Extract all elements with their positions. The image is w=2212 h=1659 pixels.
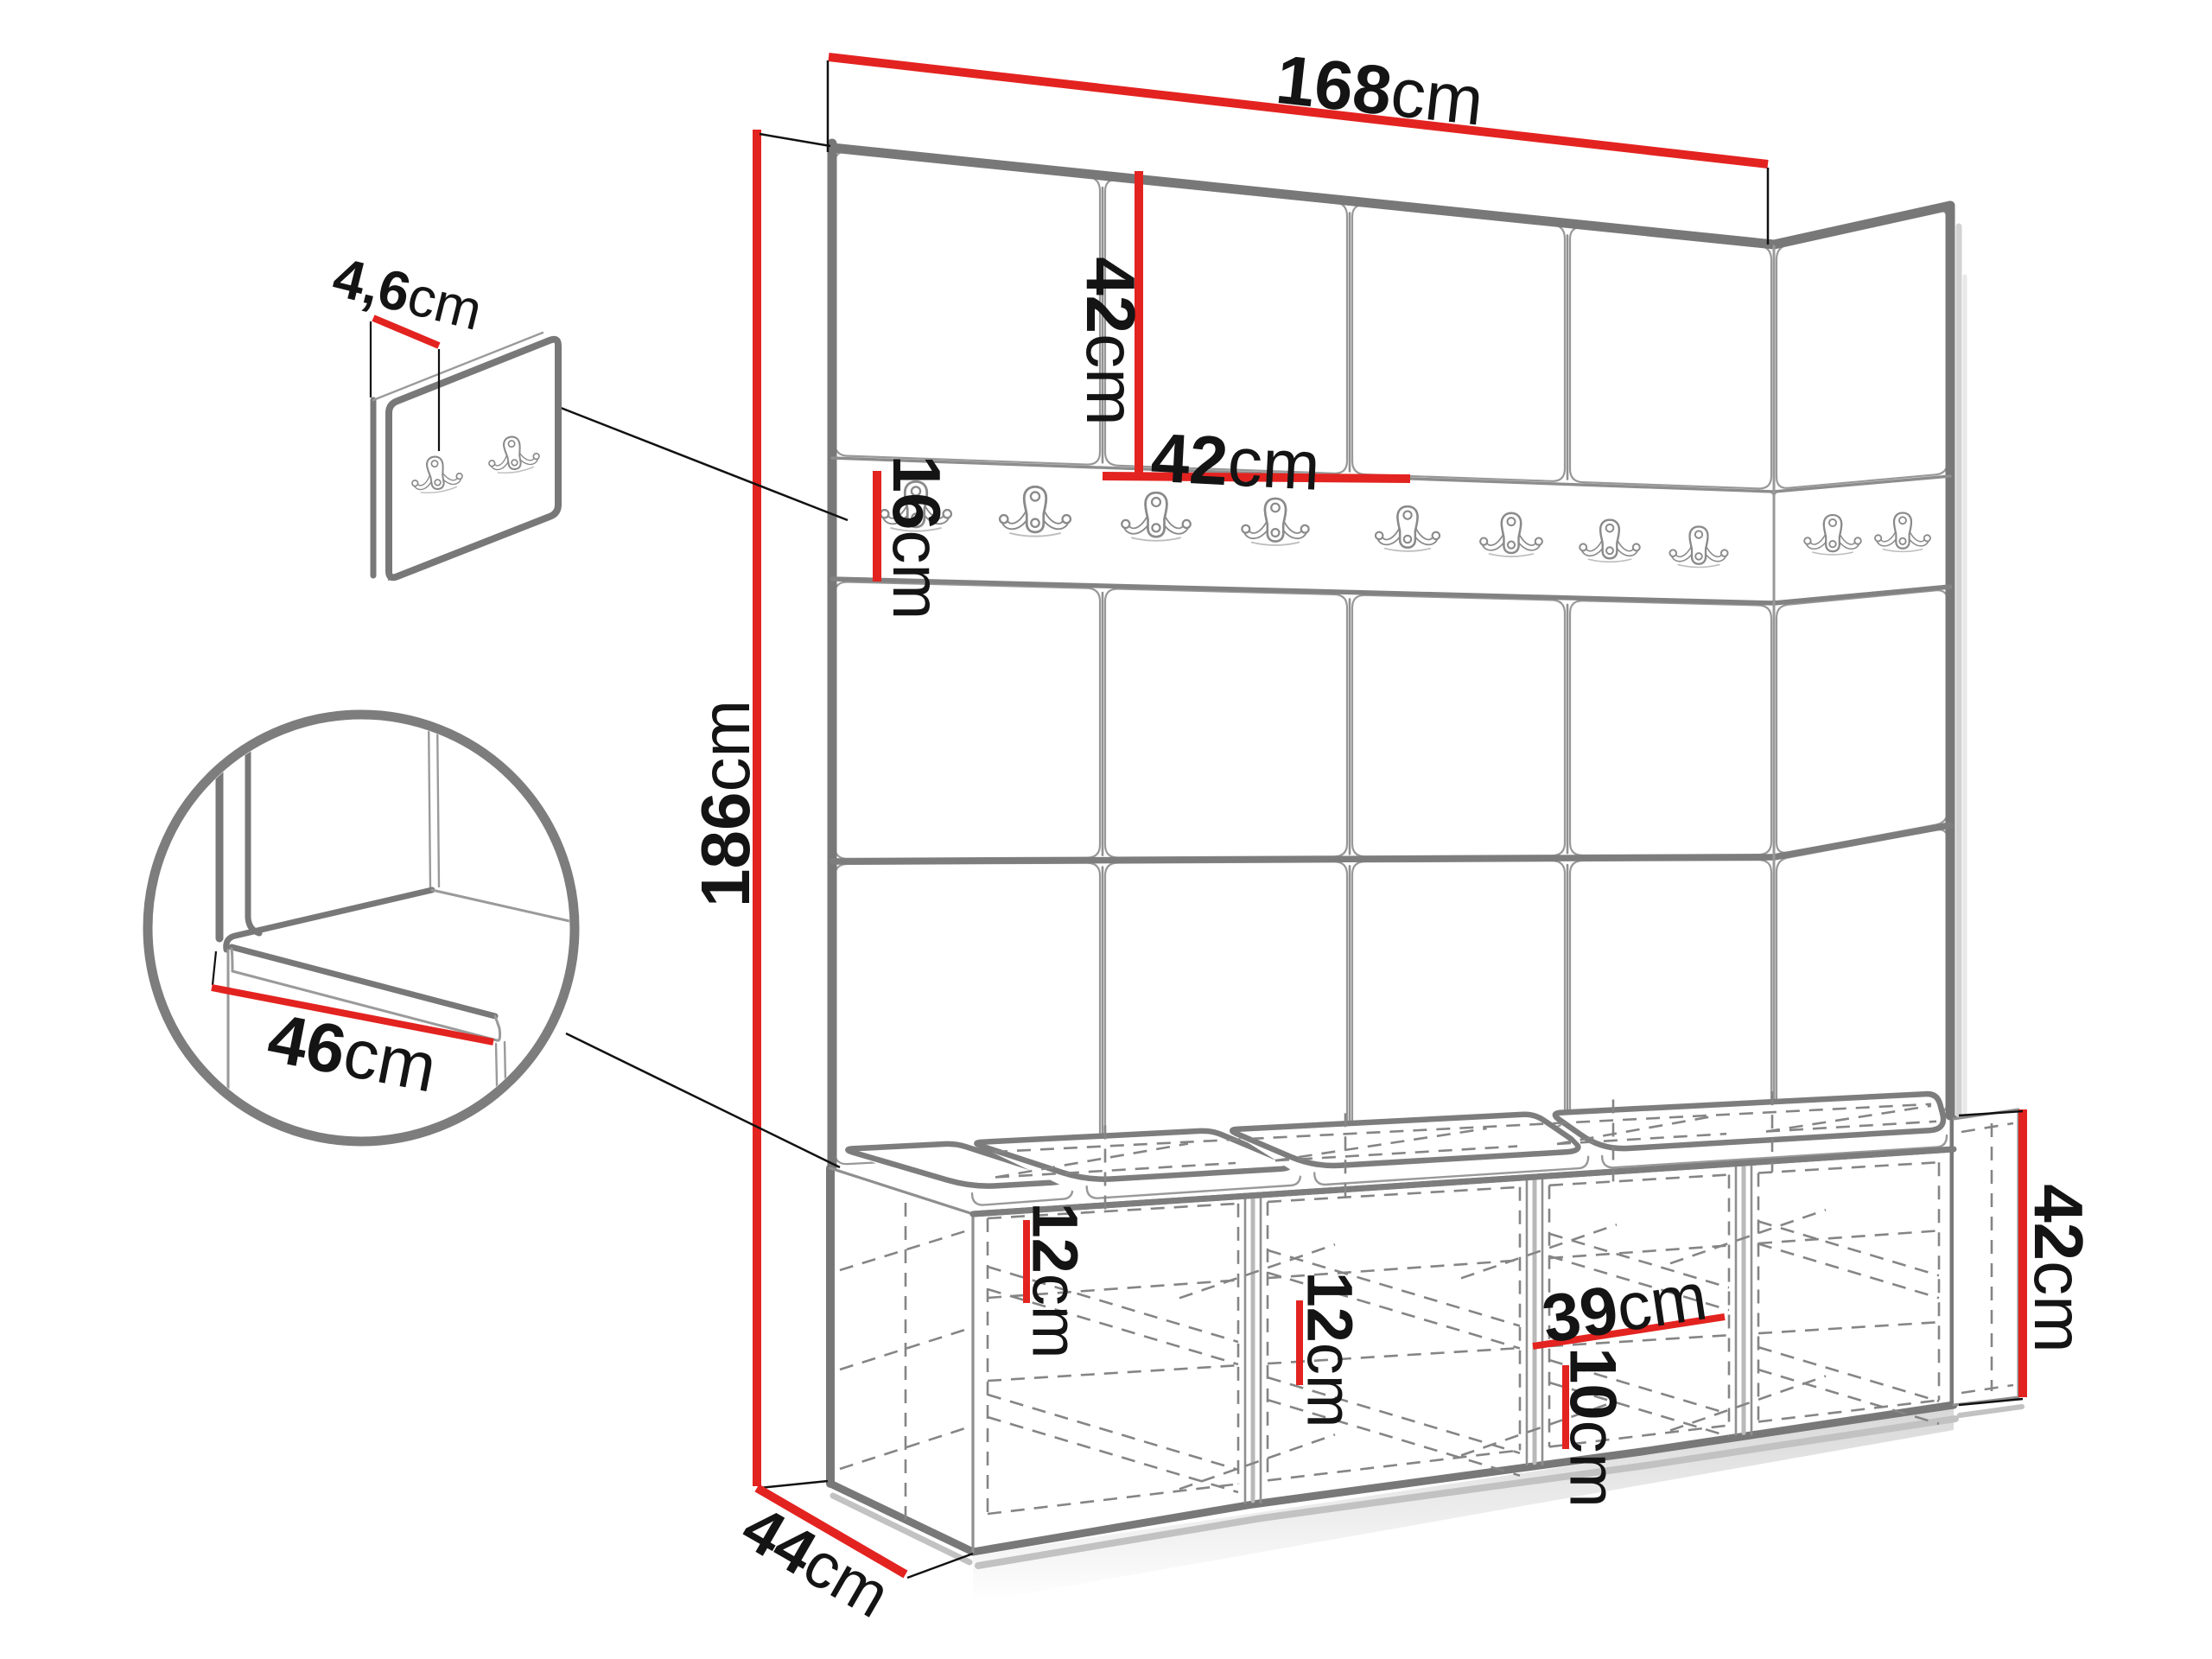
svg-text:42cm: 42cm — [1072, 257, 1149, 426]
svg-text:42cm: 42cm — [1149, 419, 1322, 505]
svg-text:42cm: 42cm — [2020, 1184, 2097, 1353]
svg-text:12cm: 12cm — [1294, 1272, 1365, 1428]
svg-text:12cm: 12cm — [1019, 1203, 1090, 1359]
svg-text:186cm: 186cm — [687, 700, 764, 907]
svg-text:10cm: 10cm — [1556, 1347, 1630, 1508]
svg-text:16cm: 16cm — [879, 455, 955, 620]
